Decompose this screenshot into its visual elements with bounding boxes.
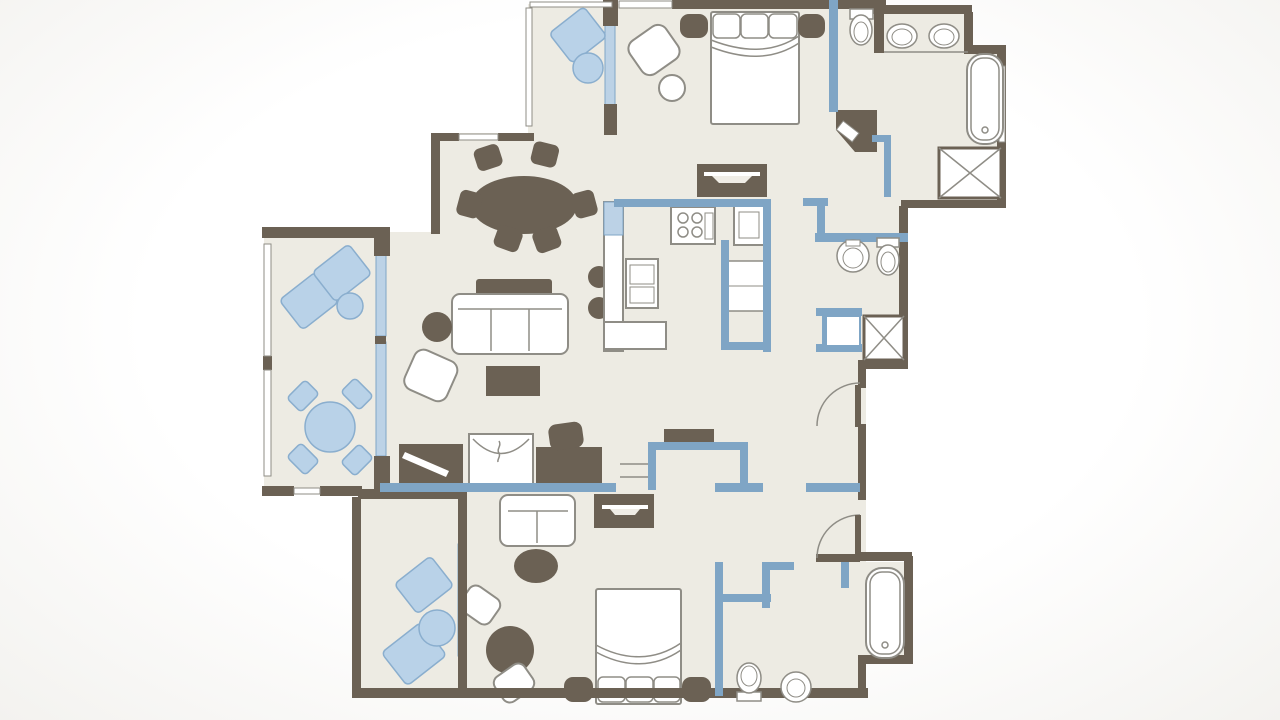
balcony-side-table [337, 293, 363, 319]
wall [263, 356, 272, 370]
window [264, 244, 271, 356]
wall [375, 336, 386, 344]
wall [320, 486, 362, 496]
wall [604, 104, 617, 135]
plumbing-wall [721, 240, 729, 350]
nightstand [680, 14, 708, 38]
sink-basin [630, 265, 654, 284]
wall [904, 556, 913, 664]
window [530, 2, 612, 7]
tv-master [704, 172, 760, 176]
bathroom-sink [887, 24, 917, 48]
wall [672, 0, 830, 9]
window [264, 370, 271, 476]
fridge-door [739, 212, 759, 238]
stove-burner [692, 213, 702, 223]
vanity-basin [826, 316, 860, 346]
bathtub [967, 54, 1003, 144]
tv-bedroom2-base [610, 509, 640, 515]
bed-master-pillow [741, 14, 768, 38]
toilet-bowl [737, 663, 761, 693]
coffee-table [422, 312, 452, 342]
hall-shelf [664, 429, 714, 443]
balcony-round-table [573, 53, 603, 83]
door-leaf [855, 385, 861, 427]
wall [458, 490, 467, 692]
sofa [452, 294, 568, 354]
closet-hanging [469, 434, 533, 487]
sliding-door-balcony-top [605, 24, 615, 108]
stove-control [705, 213, 713, 239]
bed-master-pillow [769, 14, 797, 38]
window [294, 488, 320, 494]
wall [431, 133, 440, 234]
wall [858, 366, 866, 388]
stove-burner [692, 227, 702, 237]
plumbing-wall [614, 199, 771, 207]
side-table-master [659, 75, 685, 101]
wall [866, 5, 972, 14]
plumbing-wall [715, 562, 723, 696]
desk-chair [547, 421, 584, 451]
sliding-door-living-upper [376, 254, 386, 336]
plumbing-wall [721, 342, 771, 350]
bed-master-pillow [713, 14, 740, 38]
toilet-bowl [877, 245, 899, 275]
plumbing-wall [872, 135, 884, 142]
door-leaf [855, 515, 861, 557]
tv-bedroom2 [602, 505, 648, 509]
plumbing-wall [648, 442, 748, 450]
wall [352, 497, 361, 693]
plumbing-wall [829, 0, 838, 112]
window [526, 8, 532, 126]
balcony-dining-table [305, 402, 355, 452]
plumbing-wall [648, 450, 656, 490]
floor-plan-page [0, 0, 1280, 720]
plumbing-wall [841, 562, 849, 588]
kitchen-counter-return [604, 322, 666, 349]
ottoman [486, 366, 540, 396]
rug-ottoman [514, 549, 558, 583]
wall [262, 227, 390, 238]
wall [498, 133, 534, 141]
toilet-bowl [850, 15, 872, 45]
plumbing-wall [763, 199, 771, 352]
balcony-round-table [419, 610, 455, 646]
stove-burner [678, 227, 688, 237]
plumbing-wall [884, 135, 891, 197]
sliding-door-living-lower [376, 342, 386, 456]
plumbing-wall [380, 483, 616, 492]
wall [816, 554, 860, 562]
wall [431, 133, 459, 141]
sink-basin [630, 287, 654, 303]
bathroom-sink [929, 24, 959, 48]
tv-master-base [712, 176, 752, 183]
bathtub [866, 568, 904, 658]
sink-faucet [846, 240, 860, 246]
plumbing-wall [806, 483, 860, 492]
dining-table [471, 176, 577, 234]
plumbing-wall [762, 562, 794, 570]
stove-burner [678, 213, 688, 223]
wall [262, 486, 294, 496]
nightstand [798, 14, 825, 38]
plumbing-wall [740, 450, 748, 488]
plumbing-wall [715, 483, 763, 492]
floor-plan-svg [0, 0, 1280, 720]
wall [901, 200, 1006, 208]
window [459, 134, 498, 140]
window [619, 1, 672, 8]
wall [858, 552, 912, 561]
desk-bedroom2-wall [536, 447, 602, 486]
